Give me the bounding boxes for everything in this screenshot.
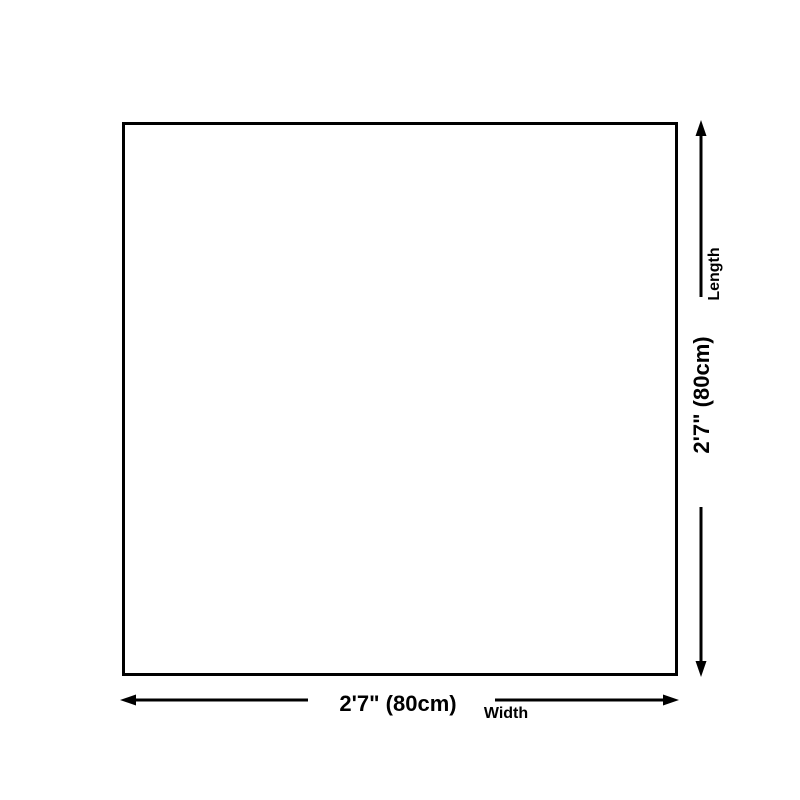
diagram-canvas	[0, 0, 800, 800]
width-arrow-left-head-icon	[120, 695, 136, 706]
product-outline-square	[124, 124, 677, 675]
length-arrow-up-head-icon	[696, 120, 707, 136]
length-arrow-down-head-icon	[696, 661, 707, 677]
width-dimension-value: 2'7" (80cm)	[339, 693, 456, 715]
product-dimension-diagram: 2'7" (80cm) Length 2'7" (80cm) Width	[0, 0, 800, 800]
width-dimension-label: Width	[484, 706, 528, 722]
width-arrow-right-head-icon	[663, 695, 679, 706]
length-dimension-value: 2'7" (80cm)	[691, 336, 713, 453]
length-dimension-label: Length	[707, 247, 723, 300]
